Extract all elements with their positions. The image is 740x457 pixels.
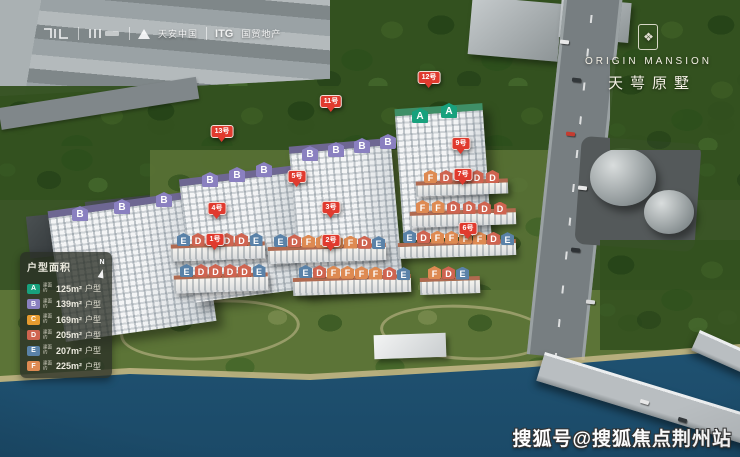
legend-type-badge: D bbox=[27, 330, 40, 340]
building-number-pin: 9号 bbox=[452, 137, 471, 158]
building-number-pin: 4号 bbox=[208, 202, 227, 223]
legend-area-prefix: 建面约 bbox=[43, 346, 52, 356]
legend-type-badge: A bbox=[27, 284, 40, 294]
legend-area-prefix: 建面约 bbox=[43, 315, 52, 325]
legend-item-D: D建面约205m²户型 bbox=[27, 330, 105, 342]
itg-logo-label: ITG bbox=[215, 28, 233, 40]
legend-type-badge: C bbox=[27, 315, 40, 325]
pin-tail bbox=[327, 213, 335, 222]
unit-area-legend: 户型面积 N A建面约125m²户型B建面约139m²户型C建面约169m²户型… bbox=[20, 252, 112, 378]
legend-suffix: 户型 bbox=[85, 330, 101, 341]
pin-tail bbox=[425, 83, 433, 92]
legend-item-F: F建面约225m²户型 bbox=[27, 361, 105, 373]
sohu-watermark: 搜狐号@搜狐焦点荆州站 bbox=[512, 424, 732, 451]
building-number-pin: 7号 bbox=[454, 168, 473, 189]
logo-divider bbox=[129, 27, 130, 40]
legend-title: 户型面积 bbox=[27, 259, 71, 274]
tianan-logo-label: 天安中国 bbox=[158, 27, 198, 40]
legend-suffix: 户型 bbox=[85, 361, 101, 372]
legend-area-value: 139m² bbox=[56, 299, 82, 309]
legend-area-value: 225m² bbox=[56, 361, 82, 371]
legend-area-value: 205m² bbox=[56, 330, 82, 340]
compass-needle bbox=[98, 265, 107, 278]
pin-tail bbox=[327, 246, 335, 255]
building-number-pin: 2号 bbox=[322, 234, 341, 255]
building-number-pin: 6号 bbox=[459, 222, 478, 243]
legend-area-value: 125m² bbox=[56, 284, 82, 294]
legend-area-prefix: 建面约 bbox=[43, 299, 52, 309]
building-number-pin: 5号 bbox=[288, 170, 307, 191]
legend-item-B: B建面约139m²户型 bbox=[27, 299, 105, 311]
itg-logo-sub-label: 国贸地产 bbox=[241, 27, 281, 40]
aerial-site-render: BBBBBBBBBBAAFDDDDFFDDDDEDFFFFDEEDDDDEEDF… bbox=[0, 0, 740, 457]
building-number-pin: 11号 bbox=[320, 95, 342, 116]
legend-suffix: 户型 bbox=[85, 345, 101, 356]
building-number-pin: 1号 bbox=[206, 233, 225, 254]
legend-items: A建面约125m²户型B建面约139m²户型C建面约169m²户型D建面约205… bbox=[27, 283, 105, 372]
building-number-pin: 13号 bbox=[211, 125, 234, 146]
developer-logo-mark-1 bbox=[42, 27, 70, 40]
developer-logo-strip: 天安中国 ITG 国贸地产 bbox=[42, 27, 281, 40]
tianan-triangle-icon bbox=[138, 29, 150, 39]
logo-divider bbox=[206, 27, 207, 40]
project-brand: ❖ ORIGIN MANSION 天萼原墅 bbox=[585, 24, 712, 93]
legend-item-E: E建面约207m²户型 bbox=[27, 345, 105, 357]
legend-area-prefix: 建面约 bbox=[43, 361, 52, 371]
pin-tail bbox=[327, 107, 335, 116]
building-number-pin: 3号 bbox=[322, 201, 341, 222]
pin-tail bbox=[218, 137, 226, 146]
compass-icon: N bbox=[99, 259, 105, 278]
legend-area-value: 207m² bbox=[56, 346, 82, 356]
pin-tail bbox=[464, 234, 472, 243]
brand-name-cn: 天萼原墅 bbox=[585, 72, 712, 93]
legend-item-C: C建面约169m²户型 bbox=[27, 314, 105, 326]
building-number-pin: 12号 bbox=[418, 71, 441, 92]
legend-item-A: A建面约125m²户型 bbox=[27, 283, 105, 295]
legend-suffix: 户型 bbox=[85, 299, 101, 310]
pin-tail bbox=[293, 182, 301, 191]
legend-area-prefix: 建面约 bbox=[43, 330, 52, 340]
legend-type-badge: F bbox=[27, 361, 40, 371]
pin-tail bbox=[457, 149, 465, 158]
brand-name-en: ORIGIN MANSION bbox=[585, 56, 712, 67]
legend-suffix: 户型 bbox=[85, 283, 101, 294]
pin-tail bbox=[459, 180, 467, 189]
legend-suffix: 户型 bbox=[85, 314, 101, 325]
legend-area-prefix: 建面约 bbox=[43, 284, 52, 294]
developer-logo-mark-2 bbox=[87, 27, 121, 40]
legend-type-badge: B bbox=[27, 299, 40, 309]
brand-emblem-icon: ❖ bbox=[638, 24, 658, 50]
pin-tail bbox=[213, 214, 221, 223]
legend-type-badge: E bbox=[27, 346, 40, 356]
legend-area-value: 169m² bbox=[56, 315, 82, 325]
pin-tail bbox=[211, 245, 219, 254]
logo-divider bbox=[78, 27, 79, 40]
